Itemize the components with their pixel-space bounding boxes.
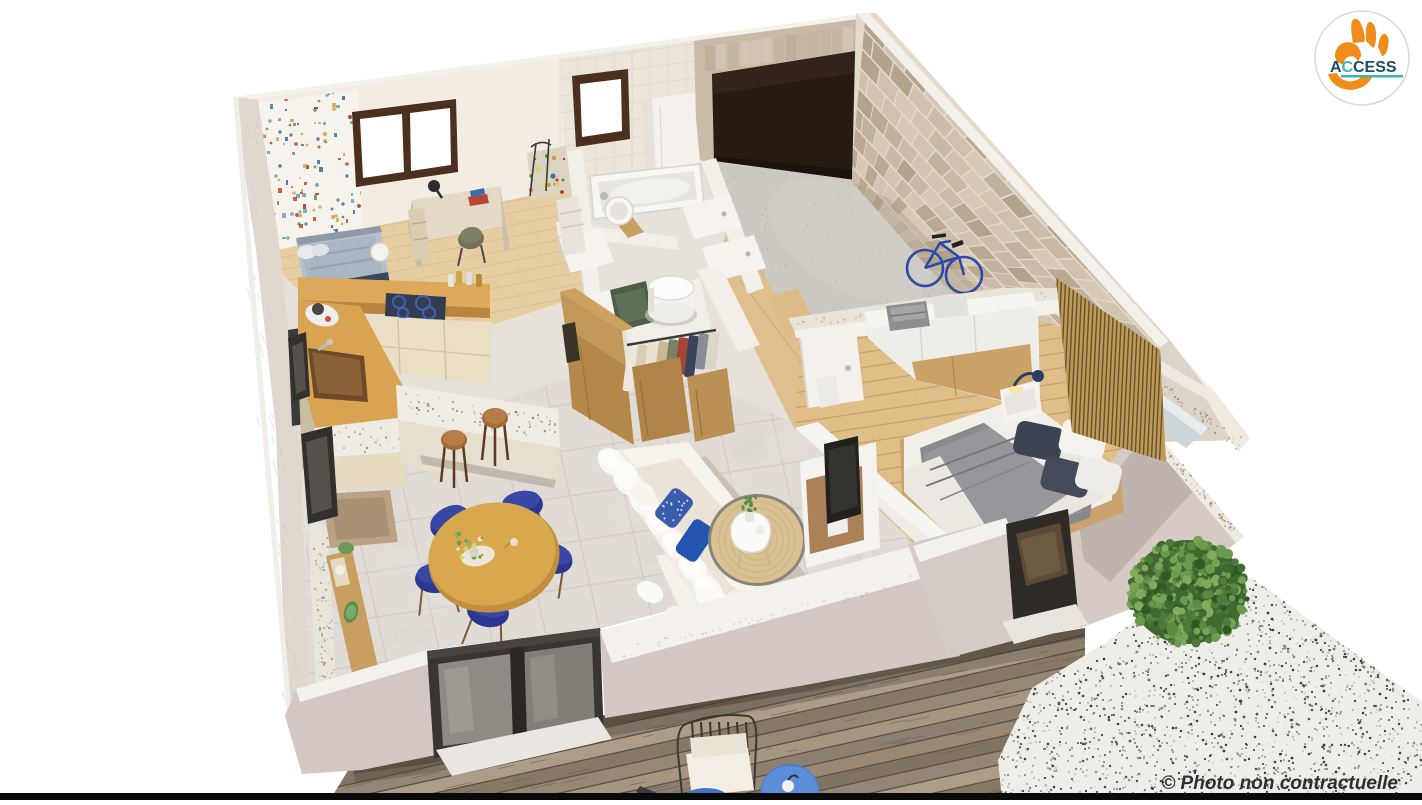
svg-text:A: A (1330, 59, 1342, 76)
svg-text:© Photo non contractuelle: © Photo non contractuelle (1161, 773, 1398, 794)
svg-text:C: C (1342, 59, 1354, 76)
svg-text:CESS: CESS (1353, 59, 1397, 76)
